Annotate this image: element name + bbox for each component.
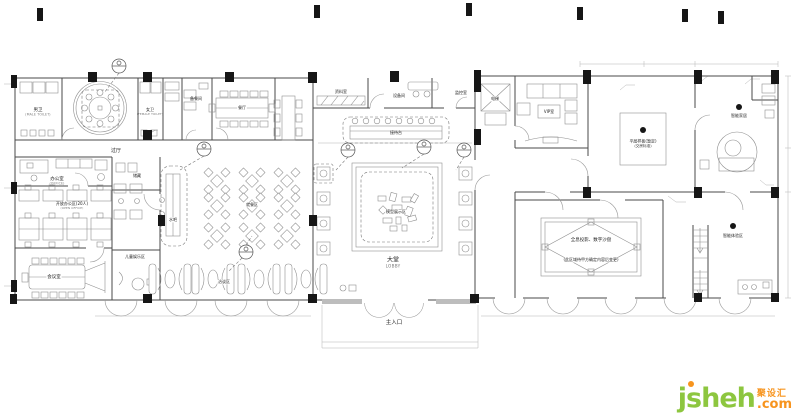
open-office-zh: 开放办公区(20人) — [56, 202, 88, 206]
label-equipment-room: 设备间 — [393, 94, 405, 99]
dimension-lines — [4, 61, 791, 348]
label-smart-home: 智能家居 — [731, 114, 747, 119]
label-model-display: 模型展示区 — [385, 210, 407, 215]
watermark-domain-suffix: .com — [757, 399, 792, 411]
watermark-brand-text: jsheh — [678, 388, 755, 411]
label-kids-area: 儿童娱乐区 — [125, 255, 145, 260]
model-flat-line2: (交房标准) — [629, 144, 656, 148]
label-male-toilet: 男卫 (MALE TOILET) — [25, 107, 50, 116]
label-smart-experience: 智能体验区 — [723, 234, 743, 239]
label-main-entrance: 主入口 — [386, 320, 403, 327]
floor-plan-page: 男卫 (MALE TOILET) 女卫 (FEMALE TOILET) 备餐间 … — [0, 0, 800, 413]
label-hologram-line1: 全息投影、数字沙盘 — [570, 237, 612, 242]
label-dining-area: 就餐区 — [245, 203, 259, 208]
label-meeting-room: 会议室 — [46, 274, 61, 279]
lobby-zh: 大堂 — [387, 257, 399, 264]
model-flat-line1: 平层样板(暂定) — [629, 139, 656, 143]
label-model-flat: 平层样板(暂定) (交房标准) — [629, 139, 656, 148]
lobby-en: LOBBY — [386, 264, 401, 269]
label-hologram-line2: (此区域待甲方确定内容后变更) — [563, 258, 620, 263]
label-female-toilet: 女卫 (FEMALE TOILET) — [137, 108, 163, 116]
office-zh: 办公室 — [50, 176, 64, 181]
label-water-bar: 水吧 — [168, 218, 178, 223]
label-reception-desk: 接待台 — [390, 131, 402, 136]
floor-plan-drawing — [0, 0, 800, 413]
label-lobby: 大堂 LOBBY — [386, 257, 401, 269]
label-storage: 储藏 — [133, 174, 141, 179]
male-toilet-zh: 男卫 — [34, 107, 43, 112]
label-office: 办公室 (OFFICE) — [49, 176, 64, 185]
label-booth-area: 洽谈区 — [217, 280, 231, 285]
label-monitor-room: 监控室 — [455, 91, 467, 96]
watermark-dot-icon — [688, 381, 694, 387]
facade-doors — [105, 298, 751, 317]
label-hall: 过厅 — [111, 148, 121, 154]
watermark-right-block: 聚设汇 .com — [757, 386, 792, 411]
booth-seating — [149, 264, 327, 294]
dashed-annotations — [82, 73, 464, 272]
open-office-en: (OPEN OFFICE) — [56, 207, 88, 210]
dining-tables — [204, 168, 300, 249]
label-vip-room: VIP室 — [543, 110, 555, 115]
female-toilet-en: (FEMALE TOILET) — [137, 113, 163, 116]
entrance-canopy — [322, 299, 476, 304]
office-en: (OFFICE) — [49, 182, 64, 186]
watermark-logo: jsheh 聚设汇 .com — [678, 386, 792, 411]
female-toilet-zh: 女卫 — [146, 108, 154, 112]
label-pantry: 备餐间 — [190, 97, 202, 102]
label-archive-room: 资料室 — [335, 90, 347, 95]
label-elevator: 电梯 — [490, 97, 500, 102]
label-open-office: 开放办公区(20人) (OPEN OFFICE) — [56, 202, 88, 210]
male-toilet-en: (MALE TOILET) — [25, 113, 50, 117]
label-dining-room: 餐厅 — [237, 106, 247, 111]
